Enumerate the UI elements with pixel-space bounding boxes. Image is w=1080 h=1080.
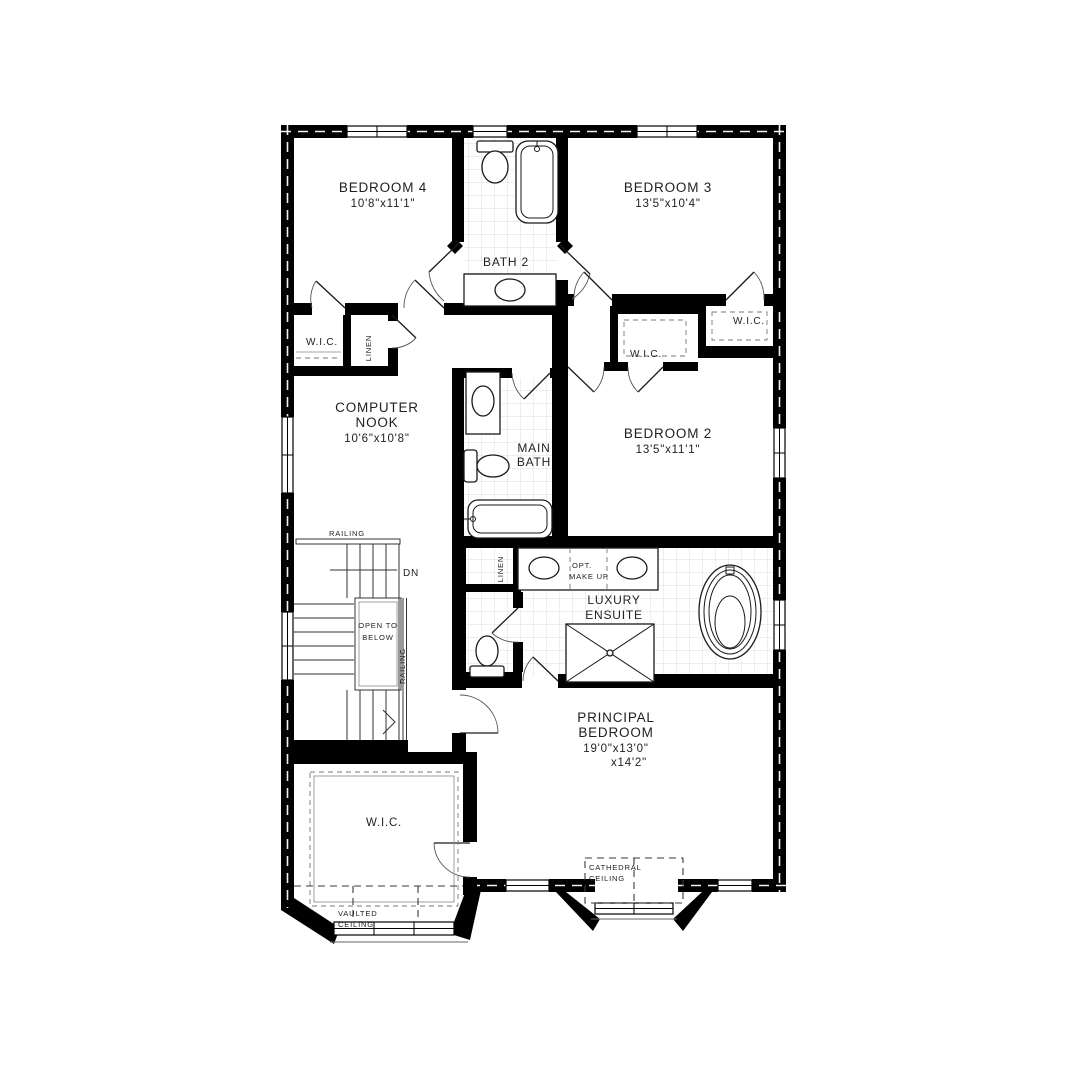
railing-top-label: RAILING [329,529,365,538]
wic-bedroom4-label: W.I.C. [306,337,338,348]
luxury-ensuite-label-1: LUXURY [587,593,640,607]
linen-label: LINEN [364,335,373,361]
bedroom2-dims: 13'5"x11'1" [636,444,701,456]
linen-ensuite-label: LINEN [496,556,505,582]
toilet-tank-fixture [470,666,504,677]
principal-bedroom-label-1: PRINCIPAL [577,710,654,725]
floor-plan-page: BEDROOM 4 10'8"x11'1" BEDROOM 3 13'5"x10… [0,0,1080,1080]
sink-fixture [617,557,647,579]
main-bath-label-1: MAIN [517,441,550,455]
opt-makeup-label-2: MAKE UP [569,572,609,581]
bathtub-fixture [516,141,558,223]
vaulted-ceiling-label-2: CEILING [338,920,374,929]
principal-window-right [718,880,752,891]
open-to-below-label-2: BELOW [362,633,393,642]
bedroom4-label: BEDROOM 4 [339,180,427,195]
toilet-tank-fixture [464,450,477,482]
bedroom4-window [347,126,407,137]
bath2-label: BATH 2 [483,255,529,269]
dn-label: DN [403,568,419,579]
stair-window [282,612,293,680]
bedroom3-window [637,126,697,137]
wic-principal-label: W.I.C. [366,817,402,829]
open-to-below-label-1: OPEN TO [358,621,398,630]
vaulted-ceiling-label-1: VAULTED [338,909,378,918]
main-bath-label-2: BATH [517,455,551,469]
principal-bedroom-dims-1: 19'0"x13'0" [583,743,648,755]
bedroom3-label: BEDROOM 3 [624,180,712,195]
soaker-tub-fixture [699,565,761,659]
bedroom4-dims: 10'8"x11'1" [351,198,416,210]
toilet-bowl-fixture [476,636,498,666]
cathedral-ceiling-label-2: CEILING [589,874,625,883]
sink-fixture [495,279,525,301]
toilet-bowl-fixture [482,151,508,183]
luxury-ensuite-label-2: ENSUITE [585,608,643,622]
bath2-window [473,126,507,137]
principal-bedroom-dims-2: x14'2" [611,757,647,769]
computer-nook-label-2: NOOK [356,415,399,430]
railing-side-label: RAILING [398,648,407,684]
wic-bedroom2-label: W.I.C. [630,349,662,360]
toilet-bowl-fixture [477,455,509,477]
principal-window-left [506,880,549,891]
computer-nook-label-1: COMPUTER [335,400,419,415]
shower-fixture [566,624,654,682]
opt-makeup-label-1: OPT. [572,561,592,570]
principal-bedroom-label-2: BEDROOM [578,725,653,740]
sink-fixture [472,386,494,416]
bedroom3-dims: 13'5"x10'4" [635,198,700,210]
bedroom2-label: BEDROOM 2 [624,426,712,441]
wic-bedroom3-label: W.I.C. [733,316,765,327]
ensuite-window [774,600,785,650]
computer-nook-dims: 10'6"x10'8" [344,433,409,445]
sink-fixture [529,557,559,579]
cathedral-ceiling-label-1: CATHEDRAL [589,863,642,872]
bedroom2-window [774,428,785,478]
computer-nook-window [282,417,293,493]
shower-drain-icon [607,650,613,656]
bathtub-fixture [468,500,552,538]
floor-plan-drawing: BEDROOM 4 10'8"x11'1" BEDROOM 3 13'5"x10… [0,0,1080,1080]
